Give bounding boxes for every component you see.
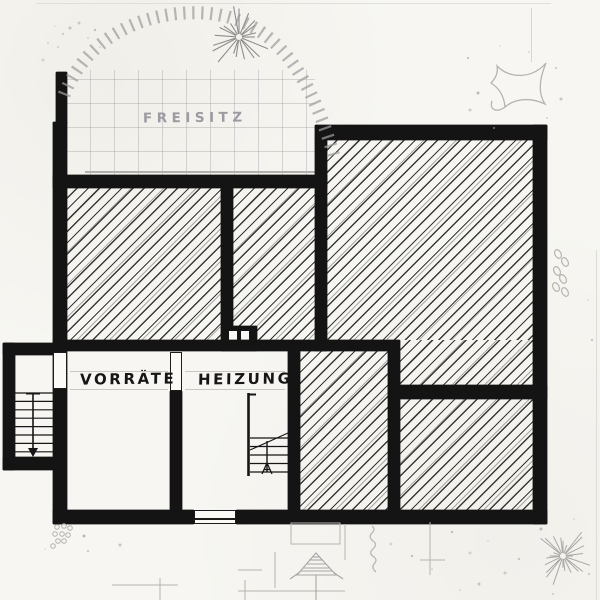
starburst-ray	[565, 558, 583, 572]
handwriting-squiggle	[370, 526, 376, 572]
wall-divider-upper-mid-large	[315, 138, 327, 351]
starburst-ray	[234, 40, 238, 54]
wall-divider-vorraete-heizung	[170, 391, 182, 510]
speckle	[57, 46, 59, 48]
starburst-ray	[553, 536, 561, 553]
starburst-ray	[566, 546, 584, 555]
label-freisitz: FREISITZ	[143, 109, 247, 126]
room-narrow-lower	[300, 351, 388, 510]
label-vorraete: VORRÄTE	[80, 369, 177, 388]
pebble	[62, 539, 67, 544]
starburst-ray	[220, 28, 237, 36]
starburst-ray	[236, 40, 238, 57]
starburst-ray	[218, 39, 237, 62]
room-upper-left	[67, 188, 221, 340]
pebble	[62, 524, 67, 529]
speckle	[487, 540, 489, 542]
speckle	[587, 299, 589, 301]
starburst-ray	[241, 39, 254, 57]
pebble	[56, 539, 61, 544]
pebble	[68, 526, 73, 531]
speckle	[477, 92, 480, 95]
wall-top-left-section	[53, 175, 327, 188]
wall-lower-right-room-top	[388, 385, 547, 399]
pebble	[55, 525, 60, 530]
starburst-ray	[213, 38, 236, 45]
speckle	[546, 117, 548, 119]
speckle	[469, 552, 472, 555]
wall-main-horizontal-divider	[53, 340, 400, 351]
starburst-ray	[565, 537, 582, 554]
scan-artifact-line	[596, 250, 597, 600]
starburst-ray	[564, 545, 567, 553]
speckle	[573, 518, 575, 520]
room-upper-middle	[233, 188, 315, 340]
speckle	[540, 528, 543, 531]
wall-divider-upper-left-mid	[221, 186, 233, 326]
wall-divider-narrow-lowerright	[388, 351, 400, 510]
wall-bottom-right-of-door	[236, 510, 547, 524]
starburst-ray	[563, 559, 564, 571]
pencil-guide-line	[70, 389, 168, 390]
staircase-exterior	[15, 393, 53, 457]
pebbles-sketch-bottom-left	[51, 524, 73, 549]
door-opening-heizung-exterior	[194, 510, 236, 524]
starburst-ray	[224, 26, 237, 35]
floor-plan-scan: FREISITZ VORRÄTE HEIZUNG	[0, 0, 600, 600]
speckle	[83, 535, 86, 538]
stair-break-line	[250, 433, 288, 450]
starburst-ray	[565, 558, 578, 571]
starburst-ray	[546, 558, 561, 573]
speckle	[528, 51, 530, 53]
starburst-ray	[242, 38, 268, 49]
starburst-ray	[553, 559, 562, 585]
speckle	[390, 543, 393, 546]
speckle	[87, 550, 89, 552]
terrace-edge-line	[85, 171, 318, 173]
pebble	[53, 532, 58, 537]
speckle	[555, 67, 557, 69]
starburst-ray	[566, 557, 590, 565]
pebble	[553, 249, 563, 260]
pebble	[551, 282, 561, 293]
starburst-ray	[240, 40, 245, 59]
speckle	[119, 544, 122, 547]
shrub-sketch-top-right	[491, 63, 546, 110]
chimney-flue-1	[229, 331, 237, 340]
starburst-ray	[545, 557, 560, 565]
speckle	[504, 572, 507, 575]
pebble	[66, 533, 71, 538]
staircase-heizung	[248, 393, 288, 476]
label-heizung: HEIZUNG	[198, 369, 293, 388]
starburst-ray	[540, 538, 560, 554]
starburst-ray	[545, 538, 561, 554]
room-lower-right	[400, 399, 533, 510]
speckle	[99, 46, 101, 48]
speckle	[467, 57, 469, 59]
speckle	[469, 109, 472, 112]
stair-direction-arrow	[262, 463, 272, 474]
speckle	[591, 339, 593, 341]
speckle	[62, 33, 64, 35]
speckle	[552, 593, 554, 595]
scan-artifact-line	[531, 8, 532, 62]
starburst-ray	[213, 38, 237, 51]
door-sill-line	[195, 518, 235, 519]
speckle	[411, 555, 413, 557]
wall-stair-enclosure-bottom	[3, 457, 53, 470]
speckle	[560, 98, 563, 101]
starburst-ray	[241, 39, 259, 57]
speckle	[42, 59, 45, 62]
speckle	[588, 573, 590, 575]
pebble	[51, 544, 56, 549]
room-large-right	[327, 140, 533, 340]
speckle	[47, 42, 49, 44]
wall-terrace-left-stub	[56, 72, 67, 124]
starburst-ray	[242, 33, 256, 36]
pebble	[60, 532, 65, 537]
speckle	[499, 45, 501, 47]
stair-direction-arrow	[28, 448, 38, 457]
starburst-ray	[546, 556, 560, 558]
speckle	[518, 558, 520, 560]
starburst-ray	[241, 25, 255, 35]
speckle	[451, 531, 453, 533]
speckle	[478, 583, 481, 586]
starburst-ray	[240, 13, 249, 34]
wall-stair-enclosure-top	[3, 343, 53, 355]
starburst-ray	[561, 538, 563, 553]
scan-artifact-line	[36, 3, 551, 4]
speckle	[431, 568, 433, 570]
starburst-ray	[564, 559, 571, 573]
pencil-guide-line	[185, 389, 285, 390]
wall-stair-enclosure-left	[3, 343, 15, 470]
wall-outer-right	[533, 125, 547, 524]
pencil-guide-line	[185, 371, 285, 372]
wall-top-right-section	[315, 125, 547, 140]
speckle	[78, 22, 81, 25]
starburst-ray	[554, 553, 561, 555]
pebble	[552, 266, 562, 277]
starburst-ray	[565, 532, 582, 554]
starburst-ray	[215, 35, 236, 36]
speckle	[44, 548, 46, 550]
door-opening-stair-to-vorraete	[53, 352, 67, 389]
pebble	[560, 257, 570, 268]
speckle	[54, 25, 56, 27]
pencil-guide-line	[70, 371, 168, 372]
pencil-sketch-bottom	[112, 522, 445, 600]
roof-arrow-sketch	[290, 553, 343, 600]
pebble	[558, 274, 568, 285]
chimney-flue-2	[241, 331, 249, 340]
starburst-ray	[231, 23, 238, 34]
pebble	[560, 287, 570, 298]
speckle	[69, 27, 72, 30]
pebbles-sketch-right	[551, 249, 570, 298]
starburst-ray	[546, 558, 561, 577]
speckle	[94, 29, 96, 31]
room-large-right-lower-strip	[400, 340, 533, 385]
wall-bottom-left-of-door	[53, 510, 194, 524]
starburst-ray	[241, 21, 255, 35]
starburst-ray	[234, 6, 239, 34]
speckle	[459, 589, 461, 591]
speckle	[87, 37, 89, 39]
starburst-ray	[566, 554, 583, 556]
